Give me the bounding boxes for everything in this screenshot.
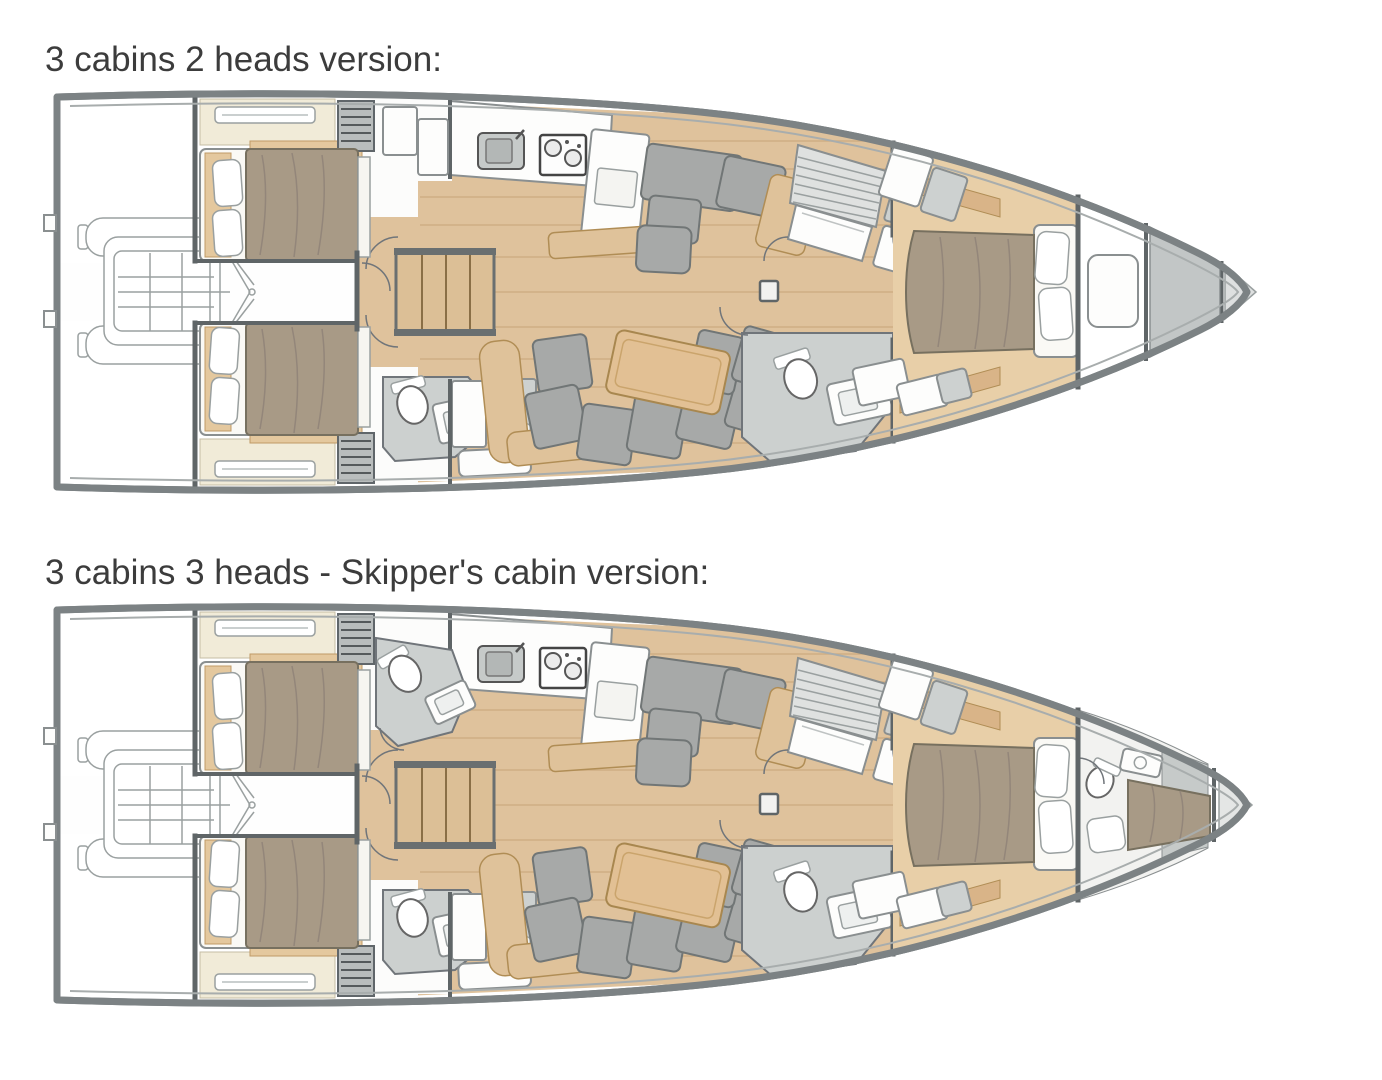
- wardrobe: [418, 119, 448, 175]
- floorplan-3-cabins-3-heads-skipper: [0, 598, 1382, 1018]
- page: 3 cabins 2 heads version: 3 cabins 3 hea…: [0, 0, 1382, 1080]
- skipper-cabin: [1078, 710, 1252, 900]
- sail-locker-hatch: [1088, 255, 1138, 327]
- wardrobe: [383, 107, 417, 155]
- plan-title-3-cabins-3-heads-skipper: 3 cabins 3 heads - Skipper's cabin versi…: [45, 553, 709, 593]
- plan-title-3-cabins-2-heads: 3 cabins 2 heads version:: [45, 40, 442, 80]
- pillow: [1086, 815, 1126, 854]
- floorplan-3-cabins-2-heads: [0, 85, 1382, 505]
